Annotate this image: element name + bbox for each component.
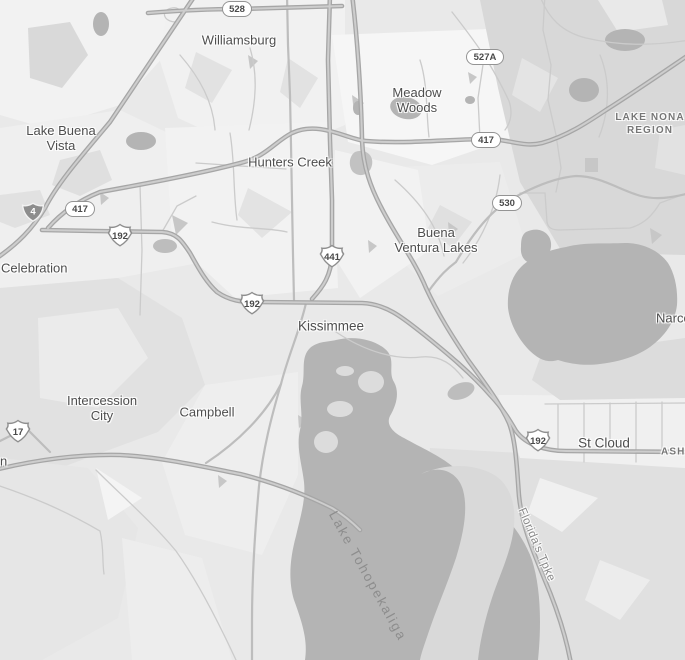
label-lake-buena-vista: Lake BuenaVista bbox=[26, 123, 95, 153]
shield-toll-530: 530 bbox=[492, 195, 522, 211]
shield-us-17: 17 bbox=[5, 419, 31, 443]
map-canvas[interactable]: WilliamsburgMeadowWoodsLake BuenaVistaHu… bbox=[0, 0, 685, 660]
label-narcoossee: Narcoossee bbox=[656, 311, 685, 326]
shield-interstate-4: 4 bbox=[21, 202, 45, 223]
label-williamsburg: Williamsburg bbox=[202, 33, 276, 48]
label-meadow-woods: MeadowWoods bbox=[392, 85, 441, 115]
shield-toll-528: 528 bbox=[222, 1, 252, 17]
shield-us-192: 192 bbox=[525, 428, 551, 452]
label-intercession-city: IntercessionCity bbox=[67, 393, 137, 423]
label-edge-partial-n: n bbox=[0, 454, 7, 469]
shield-toll-417: 417 bbox=[65, 201, 95, 217]
label-kissimmee: Kissimmee bbox=[298, 319, 364, 334]
label-buena-ventura-lakes: BuenaVentura Lakes bbox=[394, 225, 477, 255]
shield-us-441: 441 bbox=[319, 244, 345, 268]
label-celebration: Celebration bbox=[1, 261, 68, 276]
shield-toll-417: 417 bbox=[471, 132, 501, 148]
label-hunters-creek: Hunters Creek bbox=[248, 155, 332, 170]
label-ashton: ASHTON bbox=[661, 446, 685, 459]
label-campbell: Campbell bbox=[180, 405, 235, 420]
shield-toll-527A: 527A bbox=[466, 49, 504, 65]
label-lake-nona-region: LAKE NONAREGION bbox=[615, 111, 684, 137]
shield-us-192: 192 bbox=[239, 291, 265, 315]
label-st-cloud: St Cloud bbox=[578, 436, 630, 451]
shield-us-192: 192 bbox=[107, 223, 133, 247]
